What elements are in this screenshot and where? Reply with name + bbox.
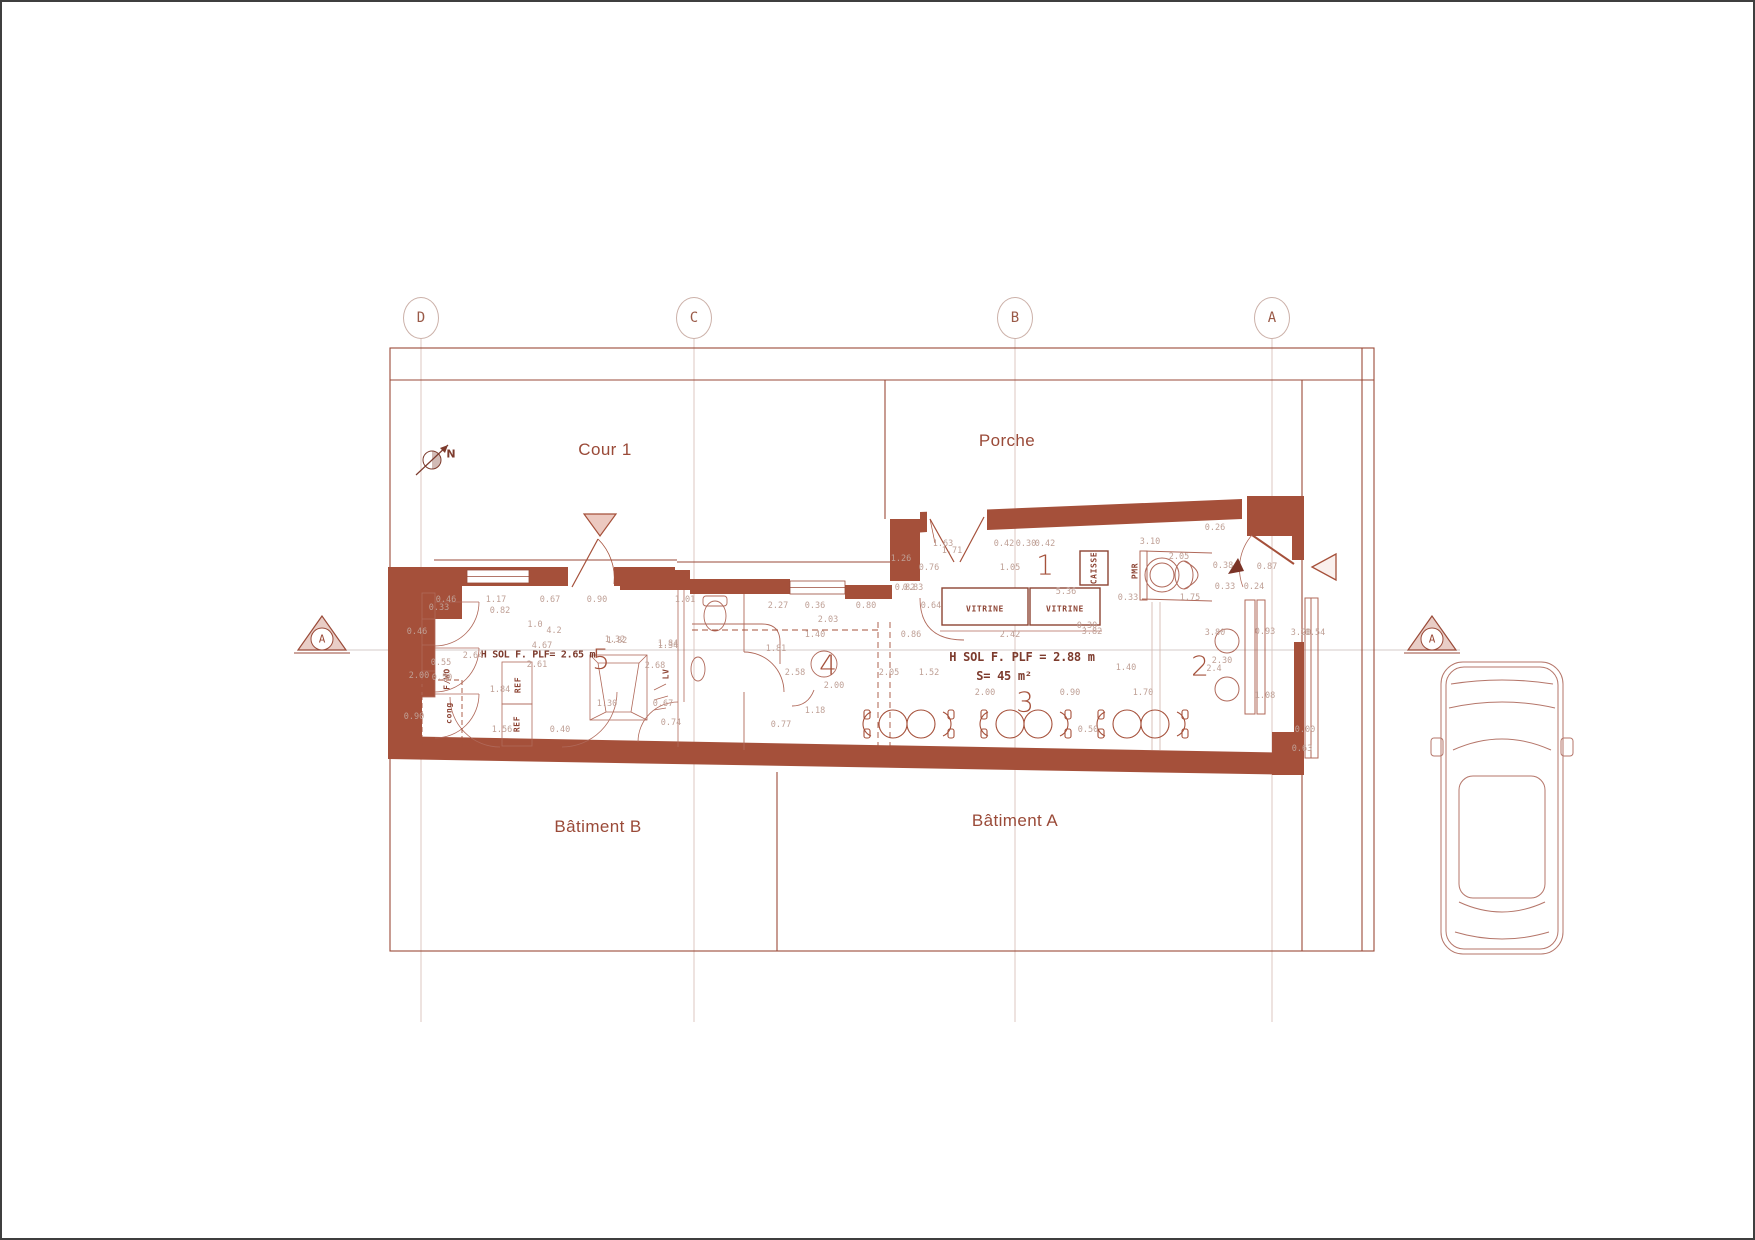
fixture-label: CAISSE — [1090, 552, 1099, 585]
dimension-label: 2.42 — [1000, 630, 1020, 640]
grid-marker-d: D — [403, 297, 439, 339]
dimension-label: 0.90 — [1060, 688, 1080, 698]
dimension-label: 0.76 — [919, 563, 939, 573]
room-number-4: 4 — [819, 649, 837, 682]
dimension-label: 1.71 — [942, 546, 962, 556]
area-label-porche: Porche — [979, 431, 1035, 451]
dimension-label: 2.58 — [785, 668, 805, 678]
dimension-label: 0.80 — [856, 601, 876, 611]
car-top-view — [1431, 662, 1573, 954]
dimension-label: 0.90 — [404, 712, 424, 722]
dimension-label: 0.74 — [661, 718, 681, 728]
dimension-label: 0.50 — [1078, 725, 1098, 735]
floor-plan-canvas: DCBA Cour 1 Porche Bâtiment B Bâtiment A… — [0, 0, 1755, 1240]
dimension-label: 2.64 — [463, 651, 483, 661]
dimension-label: 5.36 — [1056, 587, 1076, 597]
dimension-label: 0.55 — [431, 658, 451, 668]
grid-marker-a: A — [1254, 297, 1290, 339]
dimension-label: 2.00 — [824, 681, 844, 691]
grid-marker-b: B — [997, 297, 1033, 339]
dimension-label: 1.56 — [492, 725, 512, 735]
dimension-label: 2.05 — [1169, 552, 1189, 562]
area-label-cour1: Cour 1 — [578, 440, 631, 460]
dimension-label: 3.80 — [1205, 628, 1225, 638]
dimension-label: 3.10 — [1140, 537, 1160, 547]
dimension-label: 2.27 — [768, 601, 788, 611]
dimension-label: 0.33 — [429, 603, 449, 613]
dimension-label: 2.4 — [1206, 664, 1221, 674]
fixture-label: PMR — [1131, 563, 1140, 579]
dimension-label: 1.18 — [805, 706, 825, 716]
dimension-label: 0.90 — [587, 595, 607, 605]
dimension-label: 0.30 — [1077, 621, 1097, 631]
dimension-label: 0.63 — [1292, 744, 1312, 754]
dimension-label: 1.84 — [658, 639, 678, 649]
dimension-label: 0.54 — [1305, 628, 1325, 638]
plan-linework — [2, 2, 1753, 1238]
dimension-label: 0.50 — [432, 673, 452, 683]
dimension-label: 0.86 — [901, 630, 921, 640]
dimension-label: 0.67 — [653, 699, 673, 709]
room4-dashed-lines — [692, 622, 890, 751]
dimension-label: 2.00 — [409, 671, 429, 681]
dimension-label: 0.67 — [540, 595, 560, 605]
dimension-label: 0.40 — [550, 725, 570, 735]
note-room3-height: H SOL F. PLF = 2.88 m — [949, 650, 1094, 664]
dimension-label: 1.17 — [486, 595, 506, 605]
dimension-label: 1.32 — [605, 635, 625, 645]
dimension-label: 2.68 — [645, 661, 665, 671]
dimension-label: 0.38 — [1213, 561, 1233, 571]
fixture-label: REF — [513, 716, 522, 732]
dimension-label: 0.93 — [1255, 627, 1275, 637]
dimension-label: 0.82 — [895, 583, 915, 593]
dimension-label: 1.75 — [1180, 593, 1200, 603]
main-entrance-door — [1228, 535, 1294, 587]
fixture-label: VITRINE — [1046, 605, 1084, 614]
dimension-label: 1.30 — [597, 699, 617, 709]
grid-marker-c: C — [676, 297, 712, 339]
dimension-label: 0.82 — [490, 606, 510, 616]
dimension-label: 1.05 — [1000, 563, 1020, 573]
dimension-label: 4.2 — [546, 626, 561, 636]
section-label-left: A — [319, 633, 326, 646]
dimension-label: 1.0 — [527, 620, 542, 630]
fixture-label: VITRINE — [966, 605, 1004, 614]
dimension-label: 0.42 — [1035, 539, 1055, 549]
room-number-3: 3 — [1016, 686, 1034, 719]
dimension-label: 1.26 — [891, 554, 911, 564]
dimension-label: 1.40 — [805, 630, 825, 640]
dimension-label: 0.64 — [921, 601, 941, 611]
fixture-label: cong — [445, 702, 454, 724]
grid-axis-lines — [421, 338, 1272, 1022]
area-label-batiment-b: Bâtiment B — [554, 817, 641, 837]
dimension-label: 2.03 — [818, 615, 838, 625]
dimension-label: 0.26 — [1205, 523, 1225, 533]
dimension-label: 0.46 — [407, 627, 427, 637]
dimension-label: 1.08 — [1255, 691, 1275, 701]
dimension-label: 2.00 — [975, 688, 995, 698]
dimension-label: 0.30 — [1016, 539, 1036, 549]
walls — [388, 496, 1304, 775]
dimension-label: 0.24 — [1244, 582, 1264, 592]
fixture-label: REF — [514, 677, 523, 693]
dimension-label: 0.87 — [1257, 562, 1277, 572]
entrance-arrow-top — [584, 514, 616, 536]
dimension-label: 1.84 — [490, 685, 510, 695]
dimension-label: 1.40 — [1116, 663, 1136, 673]
dimension-label: 1.70 — [1133, 688, 1153, 698]
dimension-label: 4.67 — [532, 641, 552, 651]
dimension-label: 2.61 — [527, 660, 547, 670]
dimension-label: 2.05 — [879, 668, 899, 678]
dimension-label: 0.42 — [994, 539, 1014, 549]
note-room3-surface: S= 45 m² — [976, 669, 1031, 683]
room-number-1: 1 — [1036, 549, 1054, 582]
dimension-label: 0.33 — [1215, 582, 1235, 592]
dimension-label: 1.01 — [675, 595, 695, 605]
entrance-arrow-right — [1312, 554, 1336, 580]
vitrine-caisse-boxes — [942, 551, 1108, 625]
note-room5-height: H SOL F. PLF= 2.65 m — [481, 650, 595, 661]
dimension-label: 0.00 — [1295, 725, 1315, 735]
section-label-right: A — [1429, 633, 1436, 646]
dimension-label: 0.36 — [805, 601, 825, 611]
north-label: N — [446, 448, 455, 461]
dimension-label: 1.81 — [766, 644, 786, 654]
area-label-batiment-a: Bâtiment A — [972, 811, 1058, 831]
dimension-label: 0.33 — [1118, 593, 1138, 603]
dimension-label: 0.77 — [771, 720, 791, 730]
dimension-label: 1.52 — [919, 668, 939, 678]
